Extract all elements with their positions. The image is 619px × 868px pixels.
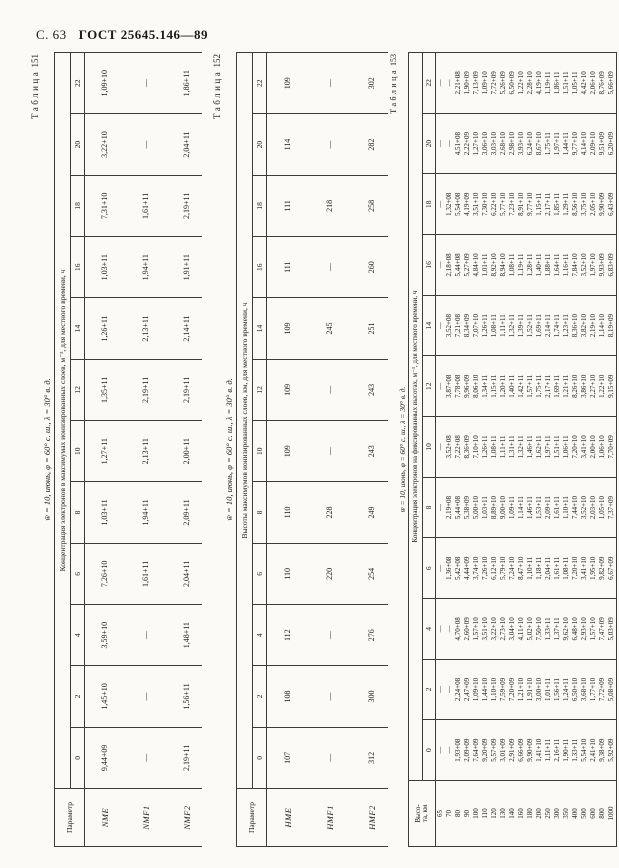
cell-value: 1,19+11 xyxy=(517,235,526,296)
cell-value: 1,22+10 xyxy=(598,356,607,417)
cell-value: 5,57+09 xyxy=(490,720,499,781)
hour-header: 0 xyxy=(71,727,85,788)
cell-value: 6,83+09 xyxy=(607,235,617,296)
cell-value: 7,26+10 xyxy=(481,538,490,599)
document-number: ГОСТ 25645.146—89 xyxy=(79,27,208,42)
cell-value: 3,52+08 xyxy=(445,295,454,356)
cell-value: 2,09+11 xyxy=(544,477,553,538)
cell-value: 1,93+08 xyxy=(454,720,463,781)
row-label: 120 xyxy=(490,781,499,847)
cell-value: 1,53+11 xyxy=(535,477,544,538)
table-row: NME9,44+091,45+103,59+107,26+101,03+111,… xyxy=(85,53,127,847)
cell-value: 1,44+10 xyxy=(481,659,490,720)
cell-value: 109 xyxy=(267,421,310,482)
hour-header: 18 xyxy=(253,175,267,236)
cell-value: 2,13+11 xyxy=(126,298,167,359)
cell-value: 5,44+08 xyxy=(454,477,463,538)
cell-value: 1,27+10 xyxy=(472,113,481,174)
hour-header: 2 xyxy=(423,659,436,720)
cell-value: — xyxy=(309,359,351,420)
cell-value: 7,26+10 xyxy=(85,543,127,604)
cell-value: 1,44+11 xyxy=(562,113,571,174)
cell-value: 2,47+09 xyxy=(463,659,472,720)
table-label-word: Таблица xyxy=(212,70,222,119)
cell-value: 7,72+09 xyxy=(490,53,499,114)
cell-value: 3,82+10 xyxy=(580,295,589,356)
cell-value: — xyxy=(436,477,446,538)
table-row: 1109,20+091,44+103,51+107,26+101,03+111,… xyxy=(481,53,490,847)
table-block-151: Таблица 151 w̄ = 10, июнь, φ = 60° с. ш.… xyxy=(30,52,202,847)
cell-value: 5,54+08 xyxy=(454,174,463,235)
cell-value: 1,46+11 xyxy=(526,477,535,538)
cell-value: — xyxy=(445,53,454,114)
table-row: 1402,91+097,20+093,04+107,24+101,09+111,… xyxy=(508,53,517,847)
row-label: 350 xyxy=(562,781,571,847)
hour-header: 20 xyxy=(71,114,85,175)
cell-value: 1,32+11 xyxy=(508,295,517,356)
row-label: 160 xyxy=(517,781,526,847)
cell-value: 258 xyxy=(351,175,388,236)
cell-value: 3,22+10 xyxy=(85,114,127,175)
table-row: 1303,01+097,59+092,73+105,79+109,00+101,… xyxy=(499,53,508,847)
cell-value: 2,06+10 xyxy=(589,53,598,114)
table-row: 1809,90+091,91+105,02+101,10+111,46+111,… xyxy=(526,53,535,847)
table-caption: Концентрация электронов в максимумах ион… xyxy=(55,53,71,789)
cell-value: 2,68+10 xyxy=(499,113,508,174)
row-label: 250 xyxy=(544,781,553,847)
cell-value: 1,77+10 xyxy=(589,659,598,720)
cell-value: 1,16+11 xyxy=(562,235,571,296)
cell-value: 6,48+10 xyxy=(571,599,580,660)
cell-value: 1,03+11 xyxy=(85,237,127,298)
cell-value: 1,36+08 xyxy=(445,538,454,599)
table-block-153: Таблица 153 w̄ = 10, июнь, φ = 60° с. ш.… xyxy=(389,52,618,847)
cell-value: 1,40+11 xyxy=(535,235,544,296)
cell-value: 3,59+10 xyxy=(85,605,127,666)
cell-value: 8,89+10 xyxy=(490,477,499,538)
cell-value: 1,11+11 xyxy=(544,720,553,781)
cell-value: 2,27+10 xyxy=(589,356,598,417)
row-label: 110 xyxy=(481,781,490,847)
cell-value: 1,14+11 xyxy=(517,477,526,538)
table-label-number: 153 xyxy=(389,54,398,66)
cell-value: 3,75+10 xyxy=(580,174,589,235)
cell-value: 2,98+10 xyxy=(508,113,517,174)
cell-value: 3,04+10 xyxy=(508,599,517,660)
cell-value: 1,57+10 xyxy=(472,599,481,660)
cell-value: 9,90+09 xyxy=(598,174,607,235)
cell-value: 1,09+10 xyxy=(85,53,127,114)
cell-value: 8,91+10 xyxy=(517,174,526,235)
table-row: HME107108112110110109109109111111114109 xyxy=(267,53,310,847)
hour-header: 22 xyxy=(71,53,85,114)
cell-value: 1,08+11 xyxy=(562,538,571,599)
cell-value: 8,06+10 xyxy=(472,356,481,417)
cell-value: — xyxy=(445,599,454,660)
hour-header: 20 xyxy=(253,114,267,175)
cell-value: 7,50+10 xyxy=(535,599,544,660)
table-153-condition: w̄ = 10, июнь, φ = 60° с. ш., λ = 30° в.… xyxy=(399,52,407,847)
table-152-condition: w̄ = 10, июнь, φ = 60° с. ш., λ = 30° в.… xyxy=(224,52,234,847)
cell-value: 9,00+10 xyxy=(499,477,508,538)
cell-value: — xyxy=(309,237,351,298)
cell-value: 1,21+10 xyxy=(517,659,526,720)
cell-value: 6,20+09 xyxy=(607,113,617,174)
row-label: 80 xyxy=(454,781,463,847)
cell-value: 2,17+11 xyxy=(544,174,553,235)
cell-value: 8,26+10 xyxy=(571,356,580,417)
hour-header: 6 xyxy=(423,538,436,599)
cell-value: 8,76+09 xyxy=(598,53,607,114)
cell-value: 1,56+11 xyxy=(553,659,562,720)
cell-value: 1,09+10 xyxy=(481,53,490,114)
row-label: HMF1 xyxy=(309,789,351,847)
cell-value: 2,17+11 xyxy=(544,356,553,417)
cell-value: — xyxy=(436,356,446,417)
cell-value: 4,84+10 xyxy=(472,235,481,296)
hour-header: 8 xyxy=(253,482,267,543)
cell-value: 5,03+09 xyxy=(607,599,617,660)
cell-value: — xyxy=(436,538,446,599)
cell-value: 1,26+11 xyxy=(481,417,490,478)
cell-value: 1,91+11 xyxy=(167,237,202,298)
cell-value: 1,05+10 xyxy=(598,477,607,538)
cell-value: 2,28+10 xyxy=(526,53,535,114)
cell-value: 8,36+10 xyxy=(571,295,580,356)
hour-header: 12 xyxy=(423,356,436,417)
hour-header: 0 xyxy=(253,727,267,788)
cell-value: 1,52+11 xyxy=(526,295,535,356)
cell-value: 3,51+10 xyxy=(472,174,481,235)
cell-value: 1,97+11 xyxy=(553,113,562,174)
cell-value: 2,03+10 xyxy=(589,477,598,538)
cell-value: 1,48+11 xyxy=(167,605,202,666)
hour-header: 10 xyxy=(423,417,436,478)
cell-value: 1,74+11 xyxy=(553,295,562,356)
cell-value: 4,51+08 xyxy=(454,113,463,174)
hour-header: 8 xyxy=(71,482,85,543)
cell-value: 9,77+10 xyxy=(571,113,580,174)
table-row: 1205,57+091,10+103,22+106,12+108,89+101,… xyxy=(490,53,499,847)
hour-header: 14 xyxy=(71,298,85,359)
hour-header: 16 xyxy=(423,235,436,296)
cell-value: 9,93+09 xyxy=(598,235,607,296)
cell-value: 5,00+10 xyxy=(472,477,481,538)
cell-value: 2,19+11 xyxy=(167,727,202,788)
cell-value: 245 xyxy=(309,298,351,359)
cell-value: 2,19+08 xyxy=(445,477,454,538)
table-row: 70———1,36+082,19+083,52+083,87+083,52+08… xyxy=(445,53,454,847)
cell-value: 109 xyxy=(267,298,310,359)
cell-value: 1,41+10 xyxy=(535,720,544,781)
cell-value: 7,20+09 xyxy=(508,659,517,720)
cell-value: 5,79+10 xyxy=(499,538,508,599)
cell-value: 1,09+11 xyxy=(508,477,517,538)
cell-value: 3,22+10 xyxy=(490,599,499,660)
table-row: 4001,33+116,50+106,48+107,20+107,44+107,… xyxy=(571,53,580,847)
cell-value: 1,56+11 xyxy=(167,666,202,727)
cell-value: 1,90+11 xyxy=(562,720,571,781)
row-label: 500 xyxy=(580,781,589,847)
cell-value: 7,22+08 xyxy=(454,417,463,478)
cell-value: 4,11+10 xyxy=(517,599,526,660)
cell-value: 1,75+11 xyxy=(535,356,544,417)
row-label: 400 xyxy=(571,781,580,847)
cell-value: 9,62+10 xyxy=(562,599,571,660)
cell-value: 260 xyxy=(351,237,388,298)
cell-value: 8,19+09 xyxy=(607,295,617,356)
cell-value: 228 xyxy=(309,482,351,543)
cell-value: 7,64+09 xyxy=(472,720,481,781)
cell-value: 1,51+11 xyxy=(562,53,571,114)
cell-value: 300 xyxy=(351,666,388,727)
cell-value: 2,19+11 xyxy=(167,359,202,420)
cell-value: — xyxy=(436,295,446,356)
corner-header: Параметр xyxy=(55,789,85,847)
table-row: 10005,92+095,08+095,03+096,67+097,37+097… xyxy=(607,53,617,847)
cell-value: 1,14+10 xyxy=(598,295,607,356)
hour-header: 10 xyxy=(253,421,267,482)
hour-header: 4 xyxy=(253,605,267,666)
cell-value: 110 xyxy=(267,482,310,543)
cell-value: 2,22+09 xyxy=(463,113,472,174)
cell-value: 3,68+10 xyxy=(580,659,589,720)
cell-value: 8,94+10 xyxy=(499,235,508,296)
hour-header: 2 xyxy=(253,666,267,727)
hour-header: 14 xyxy=(253,298,267,359)
row-label: HME xyxy=(267,789,310,847)
cell-value: 2,19+10 xyxy=(589,295,598,356)
cell-value: 1,09+10 xyxy=(472,659,481,720)
cell-value: 112 xyxy=(267,605,310,666)
cell-value: 2,19+11 xyxy=(167,175,202,236)
row-label: 100 xyxy=(472,781,481,847)
cell-value: 4,70+08 xyxy=(454,599,463,660)
cell-value: 114 xyxy=(267,114,310,175)
cell-value: — xyxy=(309,114,351,175)
page-number: С. 63 xyxy=(36,27,67,42)
table-label-number: 151 xyxy=(30,54,40,68)
table-row: 1007,64+091,09+101,57+103,74+105,00+107,… xyxy=(472,53,481,847)
hour-header: 12 xyxy=(253,359,267,420)
cell-value: 3,03+10 xyxy=(490,113,499,174)
cell-value: — xyxy=(445,113,454,174)
cell-value: — xyxy=(309,605,351,666)
table-row: 1606,66+091,21+104,11+108,47+101,14+111,… xyxy=(517,53,526,847)
table-151: ПараметрКонцентрация электронов в максим… xyxy=(54,52,202,847)
table-152: ПараметрВысоты максимумов ионизированных… xyxy=(236,52,388,847)
cell-value: 2,05+10 xyxy=(589,174,598,235)
cell-value: 312 xyxy=(351,727,388,788)
cell-value: 1,10+11 xyxy=(562,477,571,538)
cell-value: 6,24+10 xyxy=(526,113,535,174)
cell-value: 220 xyxy=(309,543,351,604)
cell-value: 9,20+09 xyxy=(481,720,490,781)
hour-header: 22 xyxy=(253,53,267,114)
cell-value: 5,26+09 xyxy=(499,53,508,114)
corner-header: Высо- та, км xyxy=(409,781,436,847)
cell-value: — xyxy=(126,727,167,788)
row-label: 130 xyxy=(499,781,508,847)
cell-value: 7,20+10 xyxy=(571,538,580,599)
cell-value: 4,19+10 xyxy=(535,53,544,114)
cell-value: 111 xyxy=(267,237,310,298)
cell-value: 6,12+10 xyxy=(490,538,499,599)
cell-value: 9,51+09 xyxy=(598,113,607,174)
cell-value: 5,02+10 xyxy=(526,599,535,660)
cell-value: 3,01+09 xyxy=(499,720,508,781)
row-label: 800 xyxy=(598,781,607,847)
cell-value: 6,66+09 xyxy=(517,720,526,781)
cell-value: 2,04+11 xyxy=(544,538,553,599)
cell-value: 1,97+10 xyxy=(589,235,598,296)
cell-value: 2,09+11 xyxy=(167,482,202,543)
cell-value: 7,31+10 xyxy=(85,175,127,236)
cell-value: 5,66+09 xyxy=(607,53,617,114)
cell-value: 110 xyxy=(267,543,310,604)
cell-value: 7,37+09 xyxy=(607,477,617,538)
hour-header: 22 xyxy=(423,53,436,114)
cell-value: 251 xyxy=(351,298,388,359)
row-label: NMF2 xyxy=(167,789,202,847)
hour-header: 6 xyxy=(253,543,267,604)
cell-value: 2,93+10 xyxy=(580,599,589,660)
row-label: 1000 xyxy=(607,781,617,847)
cell-value: 1,01+11 xyxy=(481,235,490,296)
cell-value: 8,34+09 xyxy=(463,295,472,356)
cell-value: 7,72+09 xyxy=(598,659,607,720)
cell-value: 109 xyxy=(267,359,310,420)
cell-value: 1,62+11 xyxy=(535,417,544,478)
cell-value: 2,13+11 xyxy=(126,421,167,482)
cell-value: — xyxy=(436,599,446,660)
cell-value: — xyxy=(436,53,446,114)
cell-value: 3,41+10 xyxy=(580,417,589,478)
cell-value: 2,00+11 xyxy=(167,421,202,482)
cell-value: — xyxy=(126,605,167,666)
cell-value: — xyxy=(309,666,351,727)
cell-value: 2,09+10 xyxy=(589,113,598,174)
cell-value: 1,28+11 xyxy=(526,235,535,296)
cell-value: 1,15+11 xyxy=(490,356,499,417)
cell-value: 1,69+11 xyxy=(535,295,544,356)
cell-value: 1,05+11 xyxy=(571,53,580,114)
row-label: 65 xyxy=(436,781,446,847)
hour-header: 16 xyxy=(253,237,267,298)
cell-value: 1,08+11 xyxy=(508,235,517,296)
row-label: NME xyxy=(85,789,127,847)
cell-value: 9,44+09 xyxy=(85,727,127,788)
cell-value: 1,26+11 xyxy=(85,298,127,359)
cell-value: 8,56+10 xyxy=(571,174,580,235)
row-label: NMF1 xyxy=(126,789,167,847)
cell-value: 5,92+09 xyxy=(607,720,617,781)
cell-value: 6,50+09 xyxy=(508,53,517,114)
cell-value: 5,42+08 xyxy=(454,538,463,599)
corner-header: Параметр xyxy=(237,789,267,847)
cell-value: 1,03+11 xyxy=(85,482,127,543)
cell-value: 3,52+10 xyxy=(580,477,589,538)
cell-value: — xyxy=(436,720,446,781)
cell-value: 5,38+09 xyxy=(463,477,472,538)
cell-value: 6,67+09 xyxy=(607,538,617,599)
cell-value: — xyxy=(436,113,446,174)
cell-value: 1,33+11 xyxy=(544,599,553,660)
cell-value: 1,20+11 xyxy=(499,356,508,417)
hour-header: 20 xyxy=(423,113,436,174)
cell-value: 1,85+11 xyxy=(553,174,562,235)
cell-value: 3,06+10 xyxy=(481,113,490,174)
cell-value: 1,06+11 xyxy=(562,417,571,478)
cell-value: 2,19+11 xyxy=(126,359,167,420)
cell-value: 1,10+11 xyxy=(526,538,535,599)
cell-value: 1,08+11 xyxy=(490,295,499,356)
cell-value: 7,23+10 xyxy=(508,174,517,235)
cell-value: 1,57+10 xyxy=(589,599,598,660)
table-151-label: Таблица 151 xyxy=(30,52,40,847)
hour-header: 0 xyxy=(423,720,436,781)
cell-value: 1,34+11 xyxy=(481,356,490,417)
cell-value: 7,70+09 xyxy=(607,417,617,478)
hour-header: 10 xyxy=(71,421,85,482)
table-row: HMF2312300276254249243243251260258282302 xyxy=(351,53,388,847)
cell-value: 7,59+09 xyxy=(499,659,508,720)
cell-value: 3,86+10 xyxy=(580,356,589,417)
hour-header: 18 xyxy=(423,174,436,235)
cell-value: 9,82+09 xyxy=(598,538,607,599)
table-row: NMF22,19+111,56+111,48+112,04+112,09+112… xyxy=(167,53,202,847)
page-header: С. 63ГОСТ 25645.146—89 xyxy=(36,27,208,43)
cell-value: 1,40+11 xyxy=(508,356,517,417)
cell-value: 1,18+11 xyxy=(535,538,544,599)
cell-value: 1,37+11 xyxy=(553,599,562,660)
cell-value: 3,41+10 xyxy=(580,538,589,599)
table-row: 65———————————— xyxy=(436,53,446,847)
cell-value: 9,38+09 xyxy=(598,720,607,781)
cell-value: 1,91+10 xyxy=(526,659,535,720)
cell-value: — xyxy=(309,53,351,114)
hour-header: 4 xyxy=(423,599,436,660)
table-row: HMF1———220228——245—218—— xyxy=(309,53,351,847)
cell-value: 3,00+10 xyxy=(535,659,544,720)
cell-value: 4,19+09 xyxy=(463,174,472,235)
cell-value: 7,21+08 xyxy=(454,295,463,356)
cell-value: 7,78+08 xyxy=(454,356,463,417)
cell-value: 1,86+11 xyxy=(553,53,562,114)
cell-value: 243 xyxy=(351,359,388,420)
cell-value: — xyxy=(126,53,167,114)
row-label: 600 xyxy=(589,781,598,847)
cell-value: — xyxy=(436,659,446,720)
cell-value: 1,24+11 xyxy=(562,659,571,720)
table-row: 8009,38+097,72+097,47+099,82+091,05+101,… xyxy=(598,53,607,847)
row-label: 90 xyxy=(463,781,472,847)
cell-value: 8,67+10 xyxy=(535,113,544,174)
table-block-152: Таблица 152 w̄ = 10, июнь, φ = 60° с. ш.… xyxy=(212,52,388,847)
hour-header: 16 xyxy=(71,237,85,298)
cell-value: 7,07+10 xyxy=(472,295,481,356)
cell-value: — xyxy=(309,421,351,482)
cell-value: 1,11+11 xyxy=(499,295,508,356)
cell-value: 7,44+10 xyxy=(571,477,580,538)
table-row: 5005,54+103,68+102,93+103,41+103,52+103,… xyxy=(580,53,589,847)
cell-value: 1,46+11 xyxy=(526,417,535,478)
cell-value: 2,18+08 xyxy=(445,235,454,296)
cell-value: 249 xyxy=(351,482,388,543)
cell-value: 2,24+08 xyxy=(454,659,463,720)
cell-value: 1,61+11 xyxy=(553,538,562,599)
cell-value: 1,61+11 xyxy=(126,175,167,236)
